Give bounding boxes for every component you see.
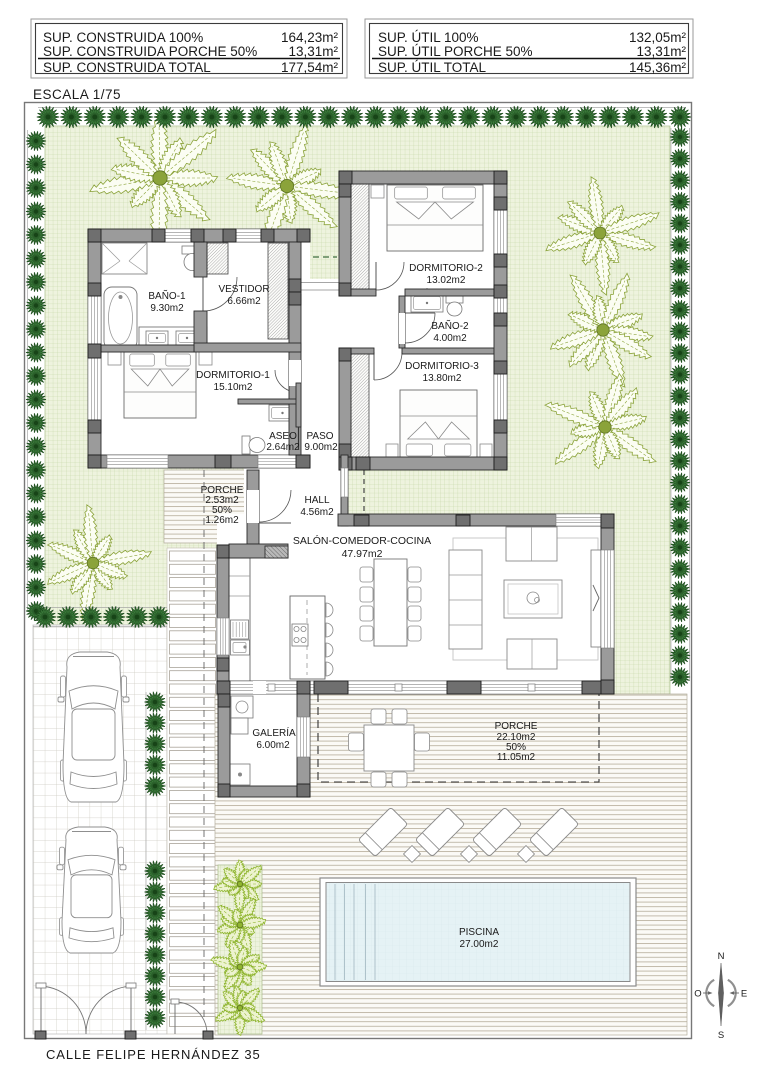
svg-text:SUP. CONSTRUIDA PORCHE 50%: SUP. CONSTRUIDA PORCHE 50% xyxy=(43,44,257,59)
svg-text:DORMITORIO-3: DORMITORIO-3 xyxy=(405,361,479,372)
svg-text:CALLE FELIPE HERNÁNDEZ 35: CALLE FELIPE HERNÁNDEZ 35 xyxy=(46,1047,261,1062)
svg-text:HALL: HALL xyxy=(304,495,329,506)
svg-text:SUP. CONSTRUIDA TOTAL: SUP. CONSTRUIDA TOTAL xyxy=(43,60,211,75)
svg-text:E: E xyxy=(741,989,747,1000)
svg-text:BAÑO-1: BAÑO-1 xyxy=(148,289,186,302)
svg-text:ESCALA 1/75: ESCALA 1/75 xyxy=(33,87,121,102)
svg-text:9.30m2: 9.30m2 xyxy=(150,303,184,314)
svg-text:DORMITORIO-1: DORMITORIO-1 xyxy=(196,370,270,381)
svg-text:SALÓN-COMEDOR-COCINA: SALÓN-COMEDOR-COCINA xyxy=(293,534,431,547)
svg-text:SUP. ÚTIL 100%: SUP. ÚTIL 100% xyxy=(378,30,479,45)
svg-text:47.97m2: 47.97m2 xyxy=(342,548,383,560)
svg-text:SUP. CONSTRUIDA 100%: SUP. CONSTRUIDA 100% xyxy=(43,30,203,45)
svg-text:S: S xyxy=(718,1030,724,1041)
svg-text:4.56m2: 4.56m2 xyxy=(300,507,334,518)
svg-text:VESTIDOR: VESTIDOR xyxy=(218,284,269,295)
svg-text:27.00m2: 27.00m2 xyxy=(460,939,499,950)
svg-text:11.05m2: 11.05m2 xyxy=(497,752,536,763)
svg-text:1.26m2: 1.26m2 xyxy=(205,515,239,526)
svg-text:PORCHE: PORCHE xyxy=(495,721,538,732)
svg-text:132,05m²: 132,05m² xyxy=(629,30,687,45)
svg-text:N: N xyxy=(718,951,725,962)
svg-text:6.66m2: 6.66m2 xyxy=(227,296,261,307)
svg-text:145,36m²: 145,36m² xyxy=(629,60,687,75)
svg-text:4.00m2: 4.00m2 xyxy=(433,333,467,344)
svg-text:2.64m2: 2.64m2 xyxy=(266,442,300,453)
svg-text:SUP. ÚTIL PORCHE 50%: SUP. ÚTIL PORCHE 50% xyxy=(378,44,533,59)
svg-text:BAÑO-2: BAÑO-2 xyxy=(431,319,469,332)
svg-text:SUP. ÚTIL TOTAL: SUP. ÚTIL TOTAL xyxy=(378,60,487,75)
svg-text:177,54m²: 177,54m² xyxy=(281,60,339,75)
svg-text:GALERÍA: GALERÍA xyxy=(252,726,296,739)
svg-text:13,31m²: 13,31m² xyxy=(636,44,686,59)
svg-text:ASEO: ASEO xyxy=(269,431,297,442)
svg-text:6.00m2: 6.00m2 xyxy=(256,740,290,751)
svg-text:PASO: PASO xyxy=(306,431,333,442)
svg-text:13.80m2: 13.80m2 xyxy=(423,373,462,384)
svg-text:13,31m²: 13,31m² xyxy=(288,44,338,59)
svg-text:9.00m2: 9.00m2 xyxy=(304,442,338,453)
svg-text:13.02m2: 13.02m2 xyxy=(427,275,466,286)
svg-text:164,23m²: 164,23m² xyxy=(281,30,339,45)
svg-text:15.10m2: 15.10m2 xyxy=(214,382,253,393)
svg-text:DORMITORIO-2: DORMITORIO-2 xyxy=(409,263,483,274)
svg-text:PISCINA: PISCINA xyxy=(459,927,499,938)
svg-text:O: O xyxy=(694,989,701,1000)
